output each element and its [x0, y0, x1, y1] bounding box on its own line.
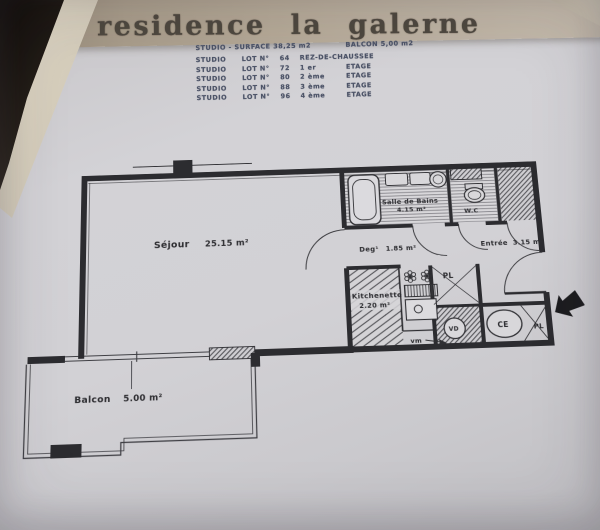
lot-number: 88: [280, 83, 300, 91]
closet-pl-top-label: PL: [442, 271, 453, 280]
washbasin-icon: [429, 171, 447, 187]
lot-level: 2 ème: [300, 72, 346, 81]
kitchen-sink-icon: [405, 299, 437, 320]
balcony-corner-pier: [50, 444, 81, 459]
closet-pl-right-label: PL: [533, 322, 544, 330]
lot-number: 64: [280, 54, 300, 62]
duct-shaft: [450, 168, 482, 180]
closet-door-arc: [507, 221, 540, 251]
lot-label: LOT N°: [243, 93, 281, 102]
lot-type: STUDIO: [196, 74, 242, 83]
lot-table: STUDIO - SURFACE 38,25 m2 BALCON 5,00 m2…: [195, 38, 472, 103]
lot-label: LOT N°: [242, 64, 280, 73]
lot-level: 3 ème: [300, 82, 346, 91]
wc-label: W.C: [464, 208, 479, 215]
lot-level: 1 er: [300, 62, 346, 71]
lot-number: 96: [280, 92, 300, 100]
vd-label: VD: [449, 327, 460, 333]
ce-label: CE: [497, 320, 509, 329]
degagement-label: Deg¹: [359, 245, 379, 253]
drainer-icon: [404, 284, 437, 297]
top-wall-pillar: [173, 160, 192, 176]
lot-label: LOT N°: [242, 54, 280, 63]
sejour-label: Séjour: [154, 239, 190, 251]
lot-type: STUDIO: [196, 55, 242, 64]
kitchenette-area: 2.20 m²: [359, 301, 391, 310]
toilet-icon: [463, 183, 485, 202]
sejour-door-arc: [305, 230, 347, 270]
degagement-area: 1.85 m²: [386, 244, 417, 253]
balcony-railing: [23, 357, 257, 459]
lot-label: LOT N°: [242, 83, 280, 92]
lot-label: LOT N°: [242, 73, 280, 82]
entry-closet-floor: [497, 167, 537, 221]
bathroom-area: 4.15 m²: [397, 206, 427, 214]
burner-icons: [404, 270, 433, 283]
photographed-floor-plan-page: residence la galerne STUDIO - SURFACE 38…: [0, 0, 600, 530]
lot-type: STUDIO: [196, 84, 242, 93]
balcon-area: 5.00 m²: [123, 392, 163, 404]
bathtub-icon: [348, 175, 382, 225]
page-title: residence la galerne: [97, 9, 481, 43]
lot-number: 72: [280, 63, 300, 71]
wall-pier: [209, 346, 255, 359]
floor-plan: Séjour 25.15 m² Salle de Bains 4.15 m² W…: [0, 134, 600, 488]
lot-etage: ETAGE: [346, 88, 472, 99]
sejour-area: 25.15 m²: [205, 237, 249, 248]
entree-label: Entrée: [480, 239, 508, 248]
lot-level: 4 ème: [300, 91, 346, 100]
entrance-arrow-icon: [548, 287, 587, 323]
balcon-label: BALCON 5,00 m2: [345, 38, 471, 49]
balcony-end-pier: [251, 353, 260, 367]
entree-area: 3.15 m²: [513, 238, 544, 247]
lot-level: REZ-DE-CHAUSSEE: [300, 53, 346, 62]
lot-number: 80: [280, 73, 300, 81]
balcon-label: Balcon: [74, 395, 111, 407]
kitchenette-label: Kitchenette: [352, 291, 403, 301]
bathroom-door-arc: [413, 225, 447, 257]
lot-type: STUDIO: [197, 93, 243, 102]
vm-label: vm: [410, 338, 422, 346]
entrance-door-arc: [501, 252, 546, 293]
lot-type: STUDIO: [196, 65, 242, 74]
